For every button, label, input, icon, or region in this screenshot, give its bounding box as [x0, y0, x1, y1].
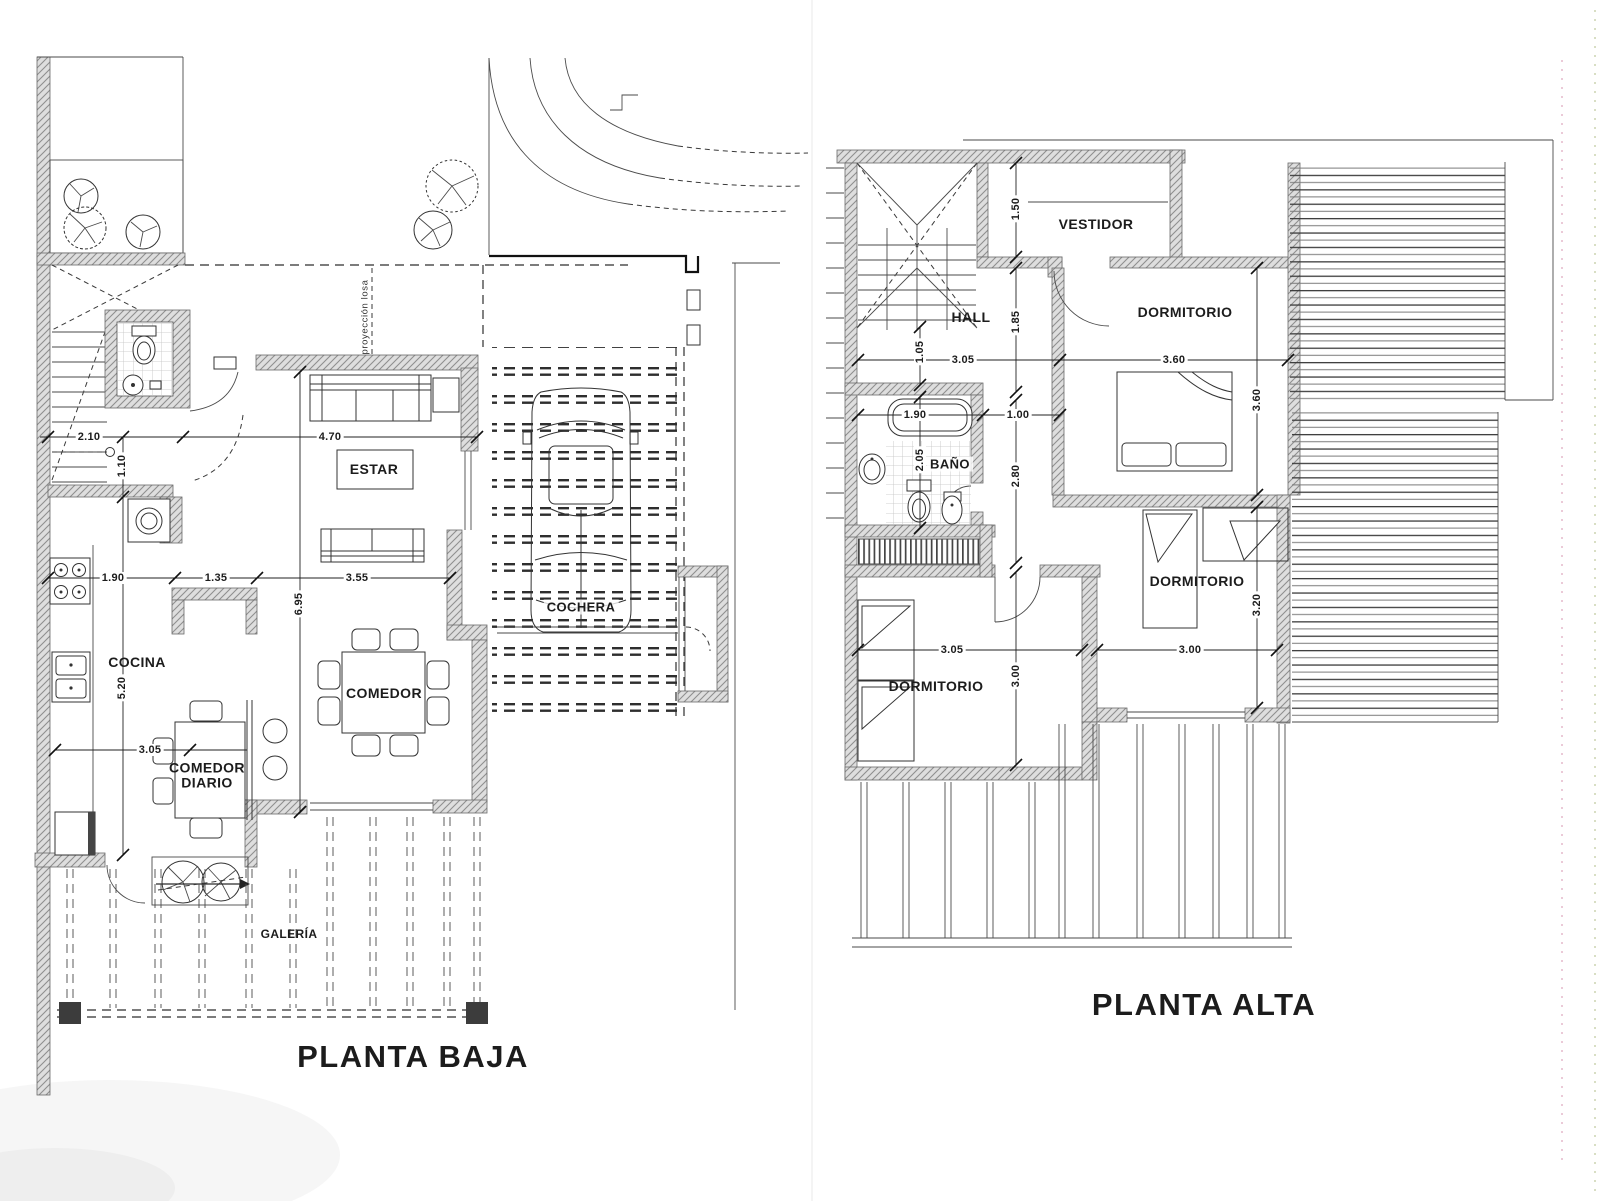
floor-plan-drawing — [0, 0, 1600, 1201]
room-label-galeria: GALERÍA — [261, 927, 318, 941]
room-label-comedor: COMEDOR — [346, 685, 422, 701]
dim-label: 3.05 — [939, 644, 966, 656]
dim-label: 2.80 — [1010, 463, 1022, 490]
bed-icon — [1143, 508, 1288, 628]
pergola-post — [466, 1002, 488, 1024]
room-label-estar: ESTAR — [350, 461, 398, 477]
dim-label: 1.00 — [1005, 409, 1032, 421]
bed-icon — [1117, 372, 1232, 471]
plan-ground-floor — [35, 57, 808, 1095]
kitchen-appliances — [50, 499, 170, 855]
dim-label: 3.55 — [344, 572, 371, 584]
sofa-icon — [321, 529, 424, 562]
room-label-dormitorio-3: DORMITORIO — [889, 678, 984, 694]
garage-side-niche — [678, 566, 728, 702]
spiral-staircase-icon — [152, 857, 250, 905]
bidet-icon — [942, 492, 962, 524]
tree-icon — [64, 179, 160, 249]
bathtub-icon — [888, 399, 972, 436]
sofa-icon — [310, 375, 459, 421]
dim-label: 1.85 — [1010, 309, 1022, 336]
dim-label: 1.90 — [100, 572, 127, 584]
roof-hatching — [963, 140, 1553, 722]
stove-icon — [50, 558, 90, 604]
dim-label: 3.60 — [1251, 387, 1263, 414]
sink-icon — [859, 454, 885, 484]
toilet-icon — [132, 326, 156, 364]
dim-label: 3.05 — [137, 744, 164, 756]
room-label-bano: BAÑO — [927, 457, 973, 472]
room-label-vestidor: VESTIDOR — [1059, 216, 1134, 232]
patio-planting — [37, 160, 185, 265]
annotation-proyeccion-losa: proyección losa — [360, 279, 371, 354]
dim-label: 3.00 — [1010, 663, 1022, 690]
tree-icon — [414, 160, 478, 249]
title-planta-alta: PLANTA ALTA — [1092, 987, 1316, 1023]
dim-label: 1.05 — [914, 339, 926, 366]
dim-label: 2.05 — [914, 447, 926, 474]
street-curb-arcs — [489, 58, 808, 255]
room-label-cocina: COCINA — [108, 654, 166, 670]
dim-label: 3.60 — [1161, 354, 1188, 366]
dim-label: 1.35 — [203, 572, 230, 584]
washer-icon — [128, 499, 170, 542]
pergola-post — [59, 1002, 81, 1024]
kitchen-sink-icon — [52, 652, 90, 702]
toilet-icon — [907, 480, 931, 522]
dim-label: 1.10 — [116, 453, 128, 480]
dim-label: 3.05 — [950, 354, 977, 366]
scanned-floor-plan-sheet: PLANTA BAJA PLANTA ALTA ESTAR COCINA COM… — [0, 0, 1600, 1201]
slab-projection-lines — [185, 256, 700, 357]
dim-label: 1.90 — [902, 409, 929, 421]
title-planta-baja: PLANTA BAJA — [297, 1039, 529, 1075]
dim-label: 2.10 — [76, 431, 103, 443]
garage-pergola — [492, 347, 684, 717]
room-label-cochera: COCHERA — [544, 600, 619, 615]
plan-upper-floor — [826, 140, 1553, 947]
dim-label: 5.20 — [116, 675, 128, 702]
room-label-dormitorio-2: DORMITORIO — [1150, 573, 1245, 589]
room-label-comedor-diario: COMEDOR DIARIO — [155, 761, 259, 792]
dim-label: 6.95 — [293, 591, 305, 618]
room-label-dormitorio-1: DORMITORIO — [1138, 304, 1233, 320]
gallery-posts — [57, 817, 492, 1024]
dim-label: 3.00 — [1177, 644, 1204, 656]
dim-label: 1.50 — [1010, 196, 1022, 223]
dim-label: 4.70 — [317, 431, 344, 443]
gallery-posts-upper — [852, 724, 1292, 947]
fridge-icon — [55, 812, 95, 855]
room-label-hall: HALL — [952, 309, 991, 325]
dim-label: 3.20 — [1251, 592, 1263, 619]
balcony-railing — [858, 539, 980, 564]
